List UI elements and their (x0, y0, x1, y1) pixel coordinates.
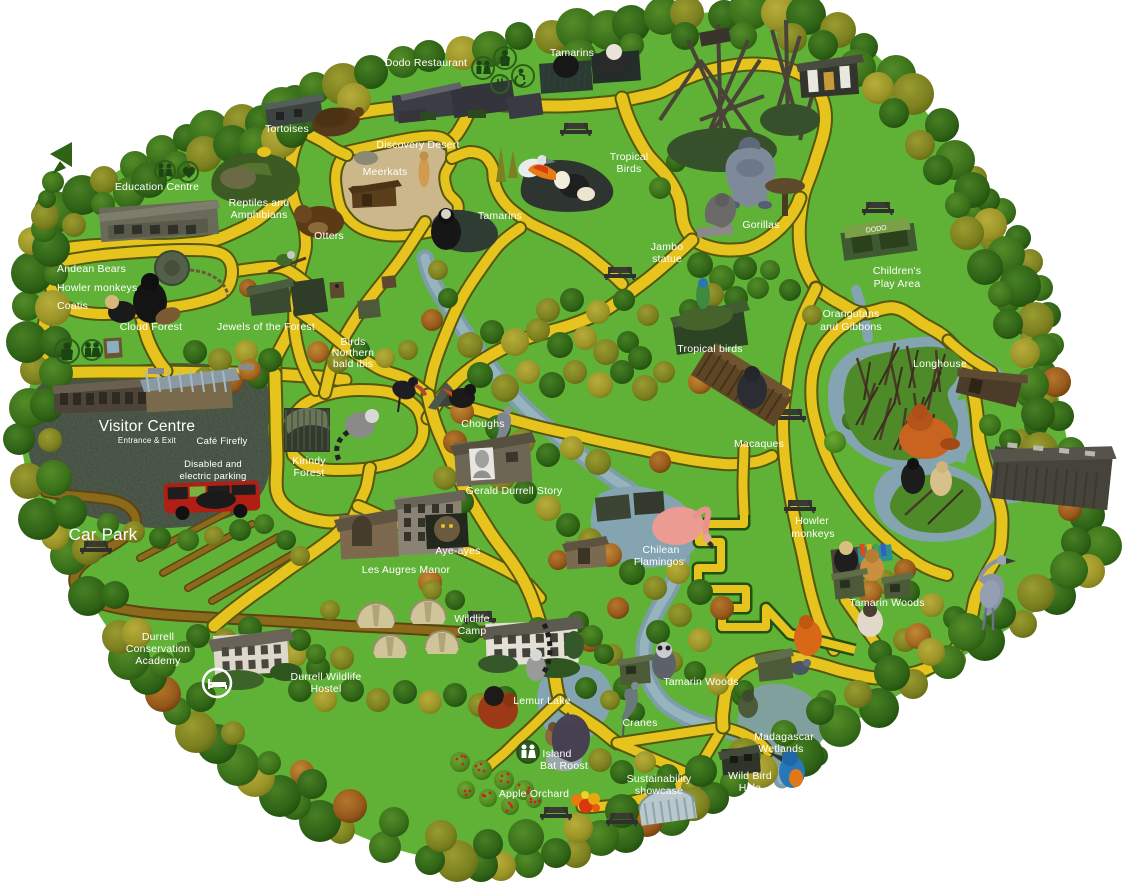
svg-text:Meerkats: Meerkats (363, 166, 408, 178)
svg-text:Discovery Desert: Discovery Desert (376, 139, 459, 151)
svg-text:Conservation: Conservation (126, 643, 190, 655)
svg-text:Disabled and: Disabled and (184, 459, 242, 470)
svg-text:Tamarins: Tamarins (478, 210, 522, 222)
svg-text:Academy: Academy (135, 655, 181, 667)
svg-text:Tamarin Woods: Tamarin Woods (663, 676, 738, 688)
svg-text:Macaques: Macaques (734, 438, 784, 450)
svg-text:Birds: Birds (617, 163, 642, 175)
svg-text:Wetlands: Wetlands (758, 743, 803, 755)
svg-text:Jewels of the Forest: Jewels of the Forest (217, 321, 315, 333)
svg-text:Tropical birds: Tropical birds (677, 343, 742, 355)
svg-text:Andean Bears: Andean Bears (57, 263, 126, 275)
svg-text:Cloud Forest: Cloud Forest (120, 321, 183, 333)
svg-text:Durrell Wildlife: Durrell Wildlife (291, 671, 362, 683)
svg-text:Aye-ayes: Aye-ayes (435, 545, 480, 557)
svg-text:statue: statue (652, 253, 682, 265)
svg-text:Cranes: Cranes (622, 717, 657, 729)
svg-text:Café Firefly: Café Firefly (197, 436, 248, 447)
svg-text:Wild Bird: Wild Bird (728, 770, 772, 782)
svg-text:Tropical: Tropical (610, 151, 649, 163)
svg-text:Tamarin Woods: Tamarin Woods (849, 597, 924, 609)
svg-text:Les Augres Manor: Les Augres Manor (362, 564, 451, 576)
svg-text:Sustainability: Sustainability (627, 773, 692, 785)
svg-text:Gorillas: Gorillas (742, 219, 779, 231)
svg-text:and Gibbons: and Gibbons (820, 321, 882, 333)
svg-text:Longhouse: Longhouse (913, 358, 967, 370)
svg-text:Forest: Forest (294, 467, 325, 479)
svg-text:Madagascar: Madagascar (754, 731, 814, 743)
svg-text:Visitor Centre: Visitor Centre (99, 418, 195, 435)
svg-text:Tortoises: Tortoises (265, 123, 309, 135)
svg-text:Kirindy: Kirindy (292, 455, 326, 467)
svg-text:Amphibians: Amphibians (231, 209, 288, 221)
svg-text:Lemur Lake: Lemur Lake (513, 695, 570, 707)
svg-text:Orangutans: Orangutans (823, 308, 880, 320)
svg-text:Coatis: Coatis (57, 300, 88, 312)
svg-text:Otters: Otters (314, 230, 344, 242)
svg-text:Education Centre: Education Centre (115, 181, 199, 193)
svg-text:Children's: Children's (873, 265, 921, 277)
svg-text:electric parking: electric parking (179, 471, 246, 482)
svg-text:monkeys: monkeys (791, 528, 834, 540)
svg-text:Play Area: Play Area (874, 278, 921, 290)
svg-text:Hide: Hide (739, 782, 761, 794)
svg-text:Car Park: Car Park (69, 525, 138, 544)
svg-text:Choughs: Choughs (461, 418, 504, 430)
svg-text:Durrell: Durrell (142, 631, 174, 643)
svg-text:Island: Island (542, 748, 571, 760)
svg-text:Tamarins: Tamarins (550, 47, 594, 59)
svg-text:Apple Orchard: Apple Orchard (499, 788, 569, 800)
svg-text:Wildlife: Wildlife (454, 613, 489, 625)
svg-text:showcase: showcase (635, 785, 683, 797)
svg-text:Dodo Restaurant: Dodo Restaurant (385, 57, 467, 69)
svg-text:bald ibis: bald ibis (333, 358, 373, 370)
svg-text:Gerald Durrell Story: Gerald Durrell Story (466, 485, 563, 497)
svg-text:Flamingos: Flamingos (634, 556, 684, 568)
svg-text:Jambo: Jambo (651, 241, 684, 253)
svg-text:Bat Roost: Bat Roost (540, 760, 588, 772)
svg-text:Reptiles and: Reptiles and (229, 197, 290, 209)
svg-text:Howler: Howler (795, 515, 829, 527)
svg-text:Chilean: Chilean (642, 544, 679, 556)
svg-text:Hostel: Hostel (311, 683, 342, 695)
svg-text:Camp: Camp (458, 625, 487, 637)
svg-text:Howler monkeys: Howler monkeys (57, 282, 137, 294)
svg-text:Entrance & Exit: Entrance & Exit (118, 436, 177, 445)
